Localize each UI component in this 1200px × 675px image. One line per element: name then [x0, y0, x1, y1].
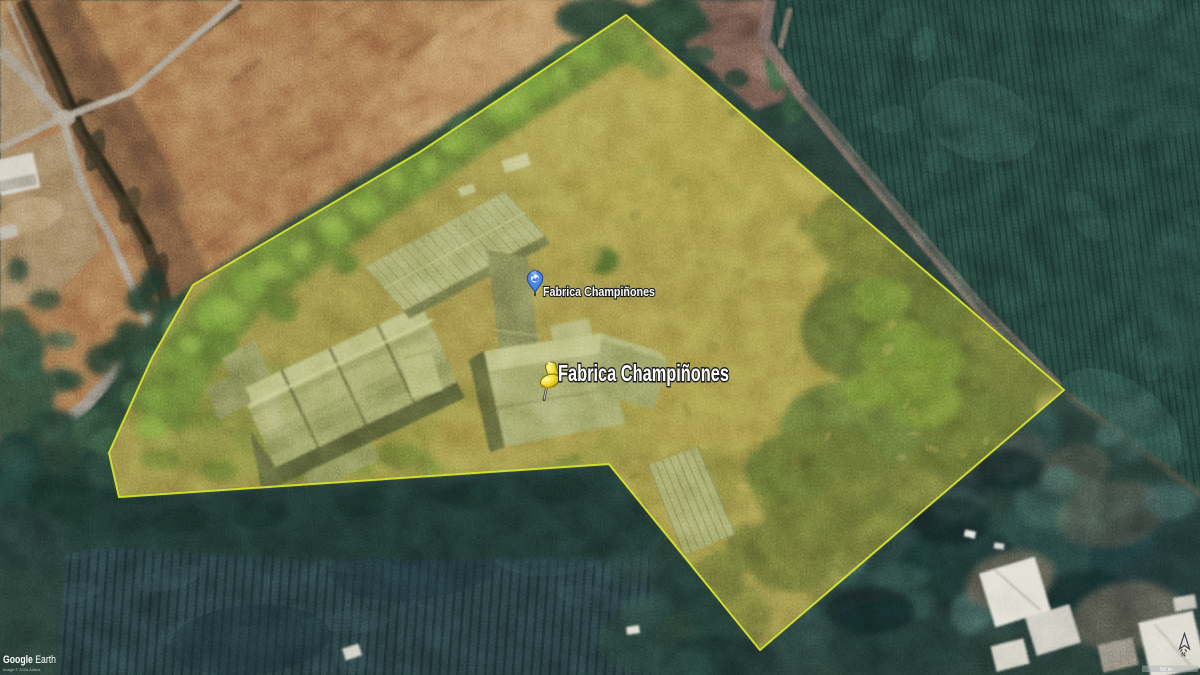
svg-text:Fabrica Champiñones: Fabrica Champiñones: [558, 360, 729, 386]
svg-text:N: N: [1181, 653, 1185, 659]
svg-text:Fabrica Champiñones: Fabrica Champiñones: [543, 285, 655, 299]
svg-text:50 m: 50 m: [1160, 667, 1173, 673]
svg-text:Google Earth: Google Earth: [3, 654, 56, 666]
svg-text:Image © 2024 Airbus: Image © 2024 Airbus: [3, 667, 40, 672]
